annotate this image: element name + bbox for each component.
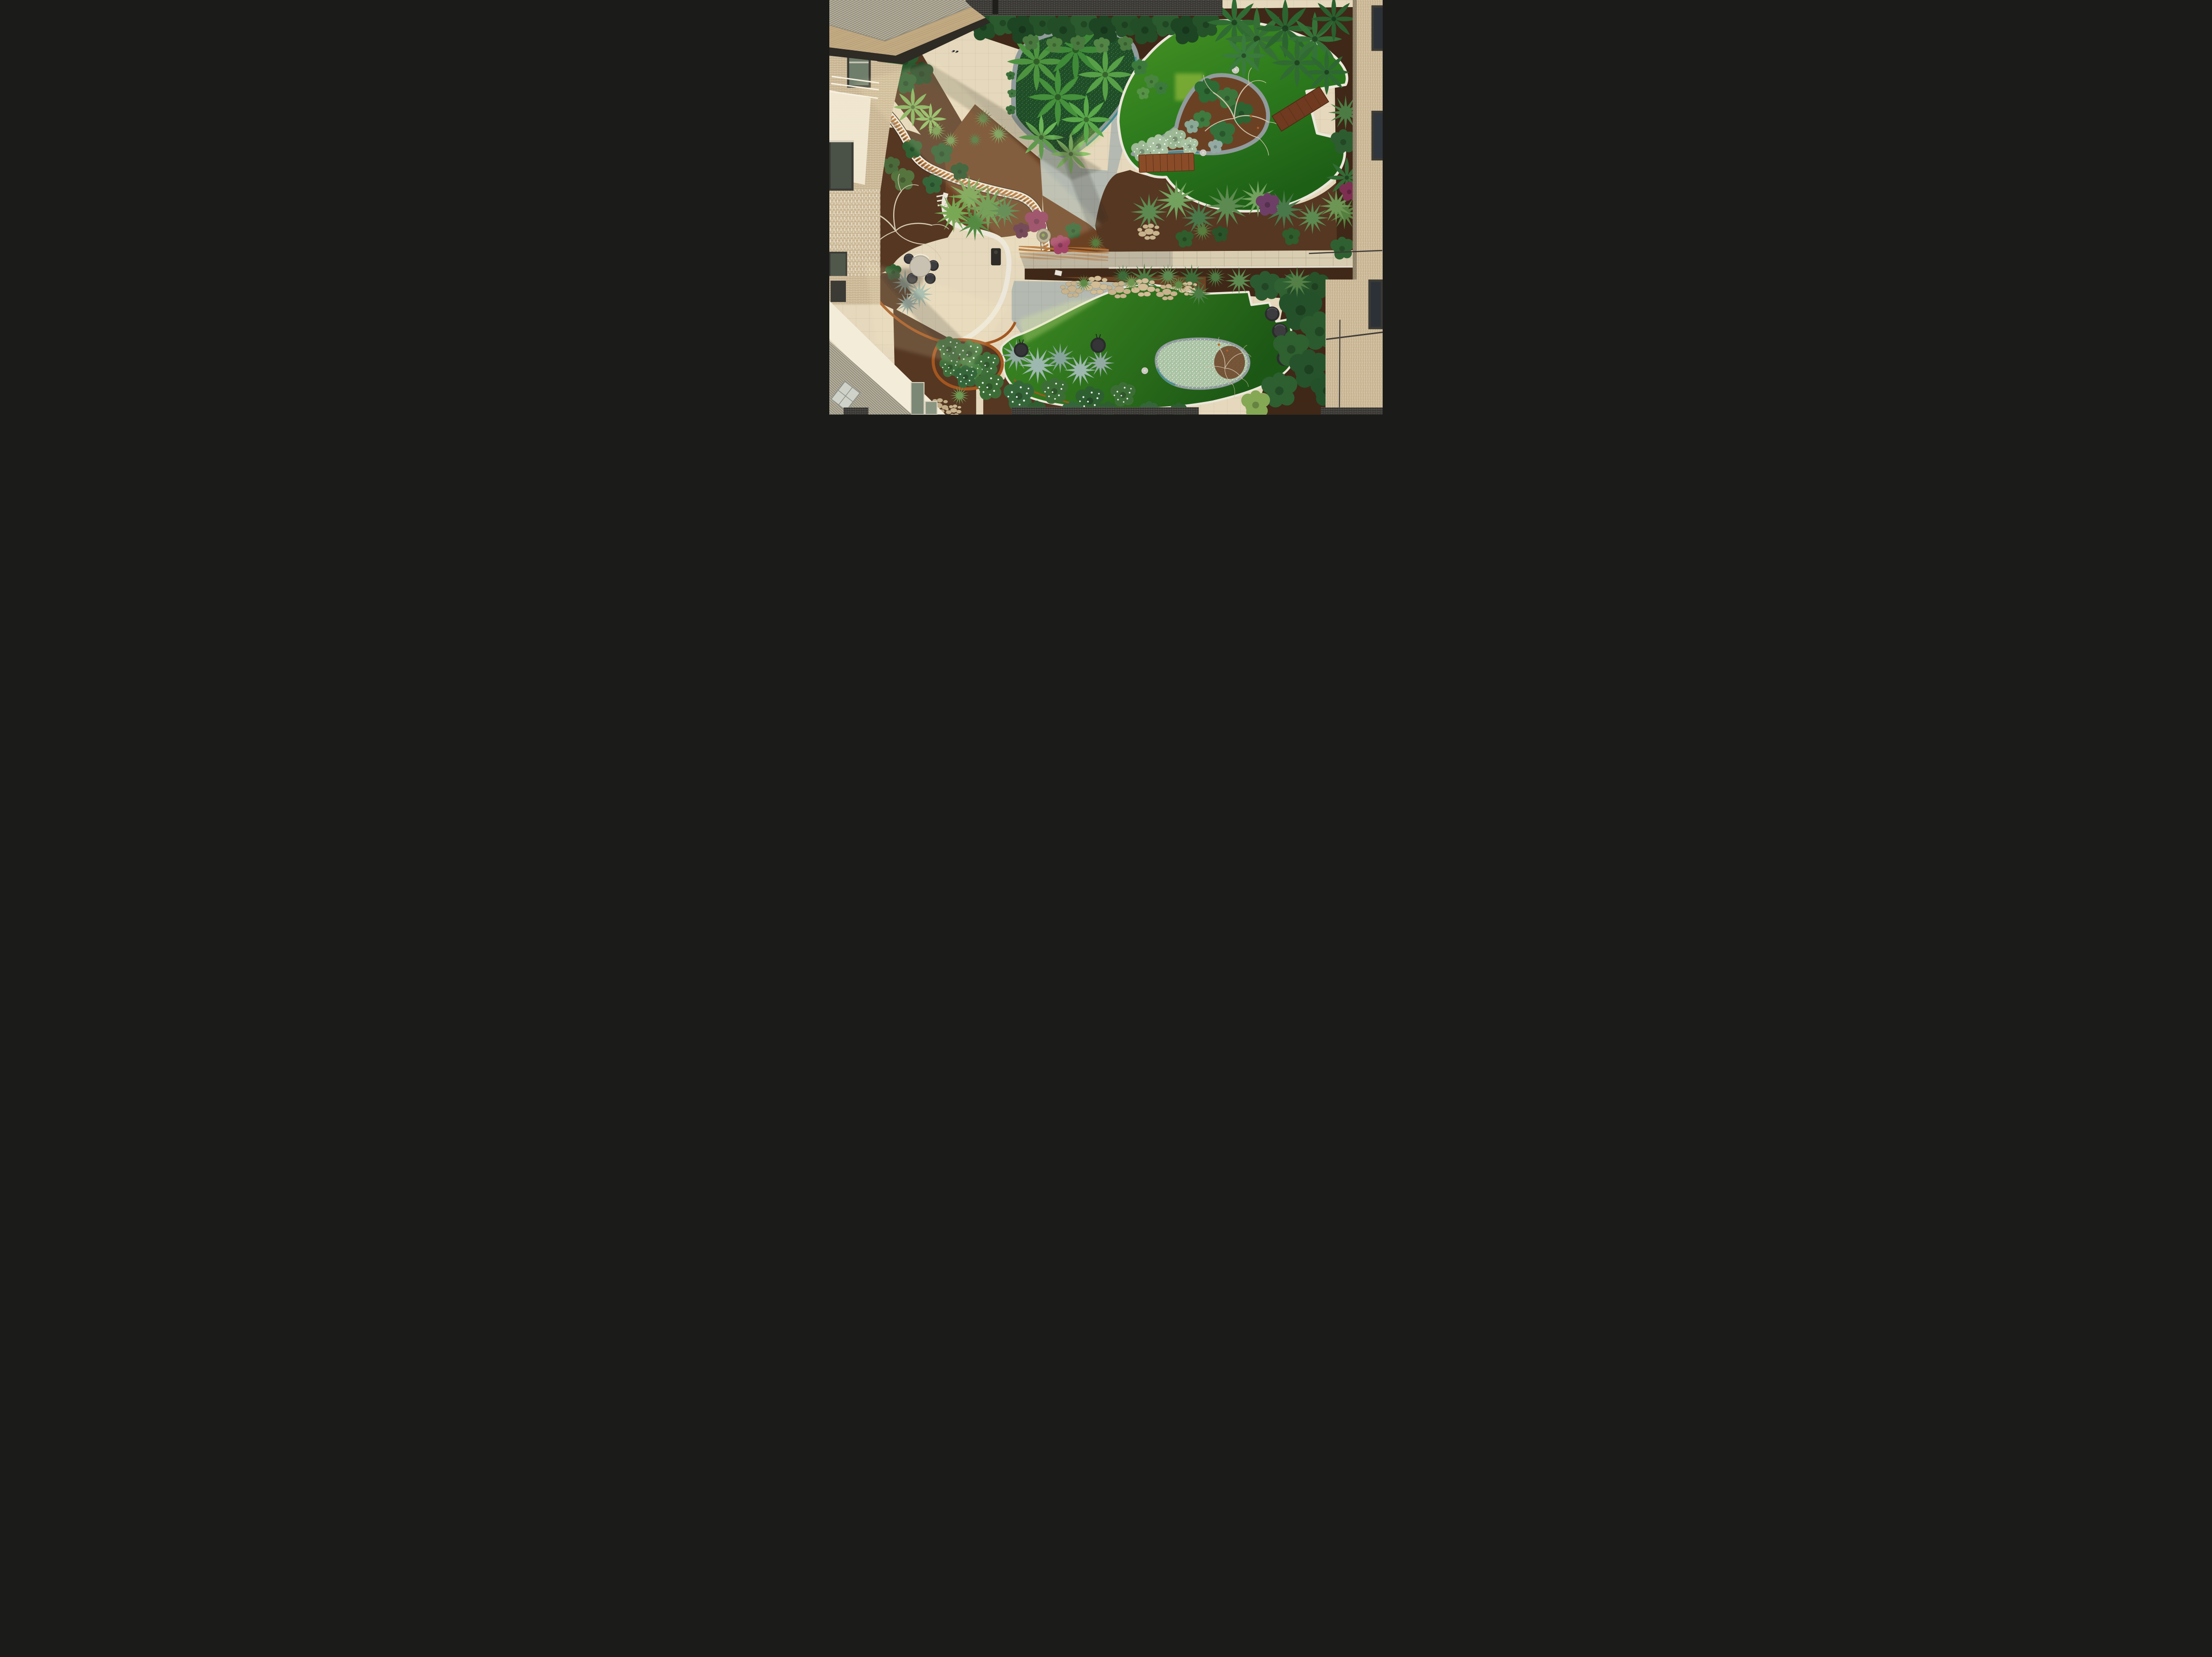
timber-bench [1139, 153, 1195, 172]
autumn-leaf [1226, 349, 1228, 351]
autumn-leaf [1218, 343, 1220, 346]
fence-shadow [1020, 256, 1108, 258]
aerial-courtyard-photo [829, 0, 1383, 415]
drain-cover [1200, 150, 1207, 156]
wall-recess [993, 0, 998, 14]
facade-edge-shade [1353, 0, 1357, 279]
path-curb [1109, 267, 1362, 268]
downpipe [1340, 320, 1340, 407]
left-window-2 [829, 140, 853, 190]
dark-brick-walkway [1321, 408, 1383, 415]
top-dark-brick-wall [966, 0, 1223, 16]
courtyard-scene [829, 0, 1383, 415]
drain-cover [1142, 367, 1148, 374]
brick-strip [844, 408, 869, 415]
window-glass [1374, 113, 1383, 158]
autumn-leaf [1257, 127, 1259, 129]
autumn-leaf [1250, 115, 1253, 117]
window [911, 383, 924, 415]
mulch-patch [1214, 346, 1245, 379]
bottom-dark-brick-path [1012, 407, 1199, 415]
window-glass [1374, 8, 1383, 48]
corner-window [831, 281, 846, 302]
dining-table [910, 256, 931, 276]
bbq-unit [991, 249, 1001, 265]
window [925, 401, 937, 415]
wing-window-glass [1371, 282, 1381, 327]
